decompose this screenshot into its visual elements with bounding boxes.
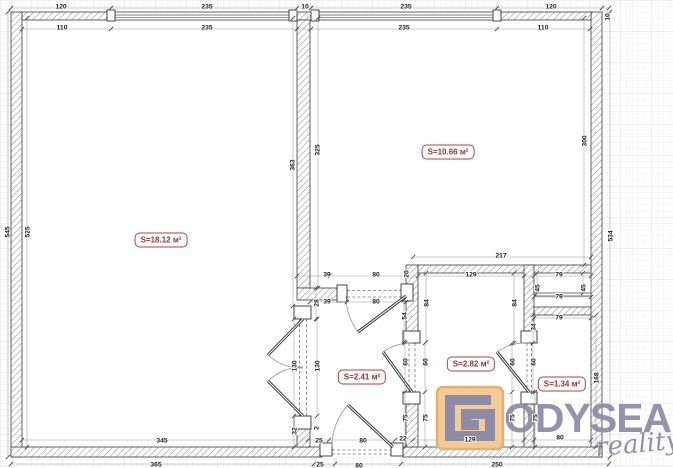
wall-top-pillar <box>297 12 311 20</box>
dimension-value: 80 <box>556 434 564 441</box>
wall-bedroom-bottom <box>418 265 591 273</box>
dimension-value: 120 <box>545 3 557 10</box>
room-label-bedroom: S=10.66 м² <box>422 145 475 160</box>
room-label-hallway: S=2.41 м² <box>338 370 386 385</box>
dimension-value: 60 <box>530 358 537 366</box>
dimension-value: 363 <box>289 159 296 171</box>
dimension-value: 60 <box>509 358 516 366</box>
dimension-value: 110 <box>538 24 549 31</box>
window-right <box>311 12 497 20</box>
floor-plan-drawing: ODYSEA reality 1202351023512010110235235… <box>0 0 673 468</box>
dimension-value: 75 <box>422 414 429 422</box>
wall-top-left <box>22 12 111 20</box>
dimension-value: 79 <box>555 293 563 300</box>
dimension-value: 54 <box>401 312 408 320</box>
wall-right <box>591 12 602 457</box>
dimension-value: 79 <box>555 314 563 321</box>
dimension-value: 80 <box>372 298 380 305</box>
dimension-value: 235 <box>400 3 412 10</box>
dimension-value: 129 <box>465 271 477 278</box>
dimension-value: 32 <box>291 427 298 435</box>
dimension-value: 120 <box>55 3 67 10</box>
dimension-value: 250 <box>491 461 503 468</box>
dimension-value: 39 <box>323 298 331 305</box>
window-left <box>111 12 297 20</box>
dimension-value: 45 <box>580 284 587 292</box>
dimension-value: 80 <box>359 437 367 444</box>
dimension-value: 34 <box>530 323 537 331</box>
dimension-value: 345 <box>156 437 168 444</box>
dimension-value: 10 <box>604 13 611 21</box>
dimension-value: 60 <box>402 358 409 366</box>
room-label-bathroom: S=2.82 м² <box>447 357 495 372</box>
dimension-value: 130 <box>314 360 321 372</box>
dimension-value: 25 <box>316 461 324 468</box>
dimension-value: 525 <box>24 226 31 238</box>
wall-middle <box>297 20 310 288</box>
wall-bottom-right <box>403 447 602 457</box>
dimension-value: 80 <box>355 462 363 468</box>
dimension-value: 365 <box>150 461 162 468</box>
dimension-value: 75 <box>402 414 409 422</box>
dimension-value: 235 <box>398 24 410 31</box>
dimension-value: 235 <box>201 24 213 31</box>
dimension-value: 39 <box>323 271 331 278</box>
floor-plan-page: ODYSEA reality 1202351023512010110235235… <box>0 0 673 468</box>
dimension-value: 2 <box>313 426 320 430</box>
dimension-value: 45 <box>534 284 541 292</box>
dimension-value: 22 <box>399 435 407 442</box>
room-label-wc: S=1.34 м² <box>538 377 586 392</box>
dimension-value: 79 <box>555 271 563 278</box>
dimension-value: 75 <box>532 414 539 422</box>
dimension-value: 10 <box>301 3 309 10</box>
dimension-value: 235 <box>201 3 213 10</box>
wall-middle-bottom <box>297 429 310 447</box>
dimension-value: 300 <box>581 135 588 147</box>
room-label-living: S=18.12 м² <box>135 233 188 248</box>
dimension-value: 217 <box>495 252 507 259</box>
dimension-value: 60 <box>422 358 429 366</box>
dimension-value: 28 <box>313 299 320 307</box>
dimension-value: 80 <box>372 271 380 278</box>
dimension-value: 129 <box>464 436 476 443</box>
dimension-value: 25 <box>315 437 323 444</box>
dimension-value: 325 <box>314 144 321 156</box>
wall-top-right <box>497 12 591 20</box>
dimension-value: 534 <box>607 230 614 242</box>
dimension-value: 168 <box>593 372 600 384</box>
dimension-value: 130 <box>291 360 298 372</box>
dimension-value: 545 <box>4 226 11 238</box>
dimension-value: 84 <box>511 299 518 307</box>
dimension-value: 110 <box>57 24 68 31</box>
wall-bottom-left <box>11 447 322 457</box>
dimension-value: 20 <box>403 270 410 278</box>
wall-left <box>11 12 22 457</box>
dimension-value: 84 <box>423 299 430 307</box>
dimension-value: 75 <box>509 414 516 422</box>
